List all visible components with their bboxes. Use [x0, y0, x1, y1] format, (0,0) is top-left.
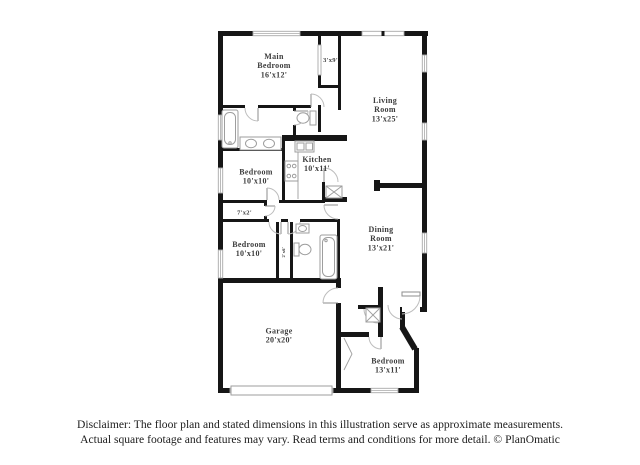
disclaimer-line-2: Actual square footage and features may v…	[0, 433, 640, 448]
svg-text:10'x11': 10'x11'	[304, 164, 330, 173]
hall-bathtub-icon	[320, 235, 337, 279]
svg-text:Room: Room	[370, 234, 392, 243]
room-label-bedroom2: Bedroom 10'x10'	[232, 240, 266, 258]
room-label-living-room: Living Room 13'x25'	[372, 96, 399, 124]
svg-text:Garage: Garage	[265, 327, 292, 336]
bedroom3-door	[369, 337, 381, 349]
master-bath-door	[245, 108, 258, 121]
svg-text:Bedroom: Bedroom	[232, 240, 266, 249]
svg-text:Kitchen: Kitchen	[302, 155, 331, 164]
window-bedroom1	[218, 168, 222, 193]
svg-text:Bedroom: Bedroom	[239, 168, 273, 177]
window-living-right-1	[422, 55, 426, 72]
svg-text:Living: Living	[373, 96, 397, 105]
kitchen-sink-icon	[295, 141, 314, 152]
svg-text:Dining: Dining	[369, 225, 394, 234]
page: { "colors": { "wall": "#161616", "label"…	[0, 0, 640, 465]
bedroom1-door	[267, 188, 279, 200]
room-label-main-bedroom: Main Bedroom 16'x12'	[257, 52, 291, 80]
window-main-bedroom	[253, 31, 300, 35]
living-dining-divider-cap	[374, 180, 380, 191]
room-label-closet-3x9: 3'x9'	[323, 57, 338, 64]
room-label-garage: Garage 20'x20'	[265, 327, 292, 345]
window-living-room-double	[362, 31, 404, 36]
svg-text:10'x10': 10'x10'	[243, 177, 270, 186]
double-vanity-sink-icon	[240, 137, 281, 150]
bedroom3-closet-bifold	[344, 338, 352, 370]
garage-door	[230, 386, 333, 395]
entry-step-wall	[420, 307, 427, 312]
exterior-wall-left	[218, 31, 223, 393]
toilet-icon	[297, 111, 316, 125]
linen-closet-door	[265, 206, 275, 216]
room-label-closet-2x6: 2'x6'	[281, 247, 286, 258]
disclaimer-line-1: Disclaimer: The floor plan and stated di…	[0, 418, 640, 433]
svg-text:Main: Main	[264, 52, 284, 61]
closet-sliding-door	[318, 45, 321, 75]
room-label-kitchen: Kitchen 10'x11'	[302, 155, 331, 173]
bedroom2-door	[269, 222, 281, 234]
pantry-icon	[326, 186, 342, 198]
entry-step-wall	[400, 307, 402, 312]
window-dining	[422, 233, 426, 253]
window-living-right-2	[422, 123, 426, 140]
main-bedroom-door	[311, 94, 324, 107]
hall-dining-door	[324, 205, 338, 219]
entry-door	[402, 292, 420, 314]
hall-toilet-icon	[294, 243, 311, 256]
living-dining-divider	[378, 183, 422, 188]
bathtub-icon	[222, 110, 238, 148]
hall-sink-icon	[296, 224, 309, 233]
stove-icon	[285, 161, 298, 181]
floor-plan-image: Main Bedroom 16'x12' 3'x9' Living Room 1…	[0, 0, 640, 465]
svg-text:13'x25': 13'x25'	[372, 115, 399, 124]
angled-wall	[399, 326, 417, 351]
utility-closet-door	[388, 305, 402, 319]
svg-text:13'x11': 13'x11'	[375, 366, 401, 375]
window-bedroom2	[218, 250, 222, 278]
svg-text:16'x12': 16'x12'	[261, 71, 288, 80]
svg-text:13'x21': 13'x21'	[368, 244, 395, 253]
svg-text:Bedroom: Bedroom	[371, 357, 405, 366]
svg-text:10'x10': 10'x10'	[236, 249, 263, 258]
water-heater-icon	[366, 308, 380, 322]
room-label-bedroom1: Bedroom 10'x10'	[239, 168, 273, 186]
garage-entry-door	[323, 288, 338, 303]
room-label-dining-room: Dining Room 13'x21'	[368, 225, 395, 253]
svg-text:Room: Room	[374, 105, 396, 114]
svg-text:Bedroom: Bedroom	[257, 61, 291, 70]
room-label-bedroom3: Bedroom 13'x11'	[371, 357, 405, 375]
bedroom3-right-wall	[414, 348, 419, 393]
svg-text:20'x20': 20'x20'	[266, 336, 293, 345]
room-label-closet-7x2: 7'x2'	[237, 210, 252, 217]
disclaimer: Disclaimer: The floor plan and stated di…	[0, 418, 640, 447]
window-bedroom3	[371, 388, 398, 392]
